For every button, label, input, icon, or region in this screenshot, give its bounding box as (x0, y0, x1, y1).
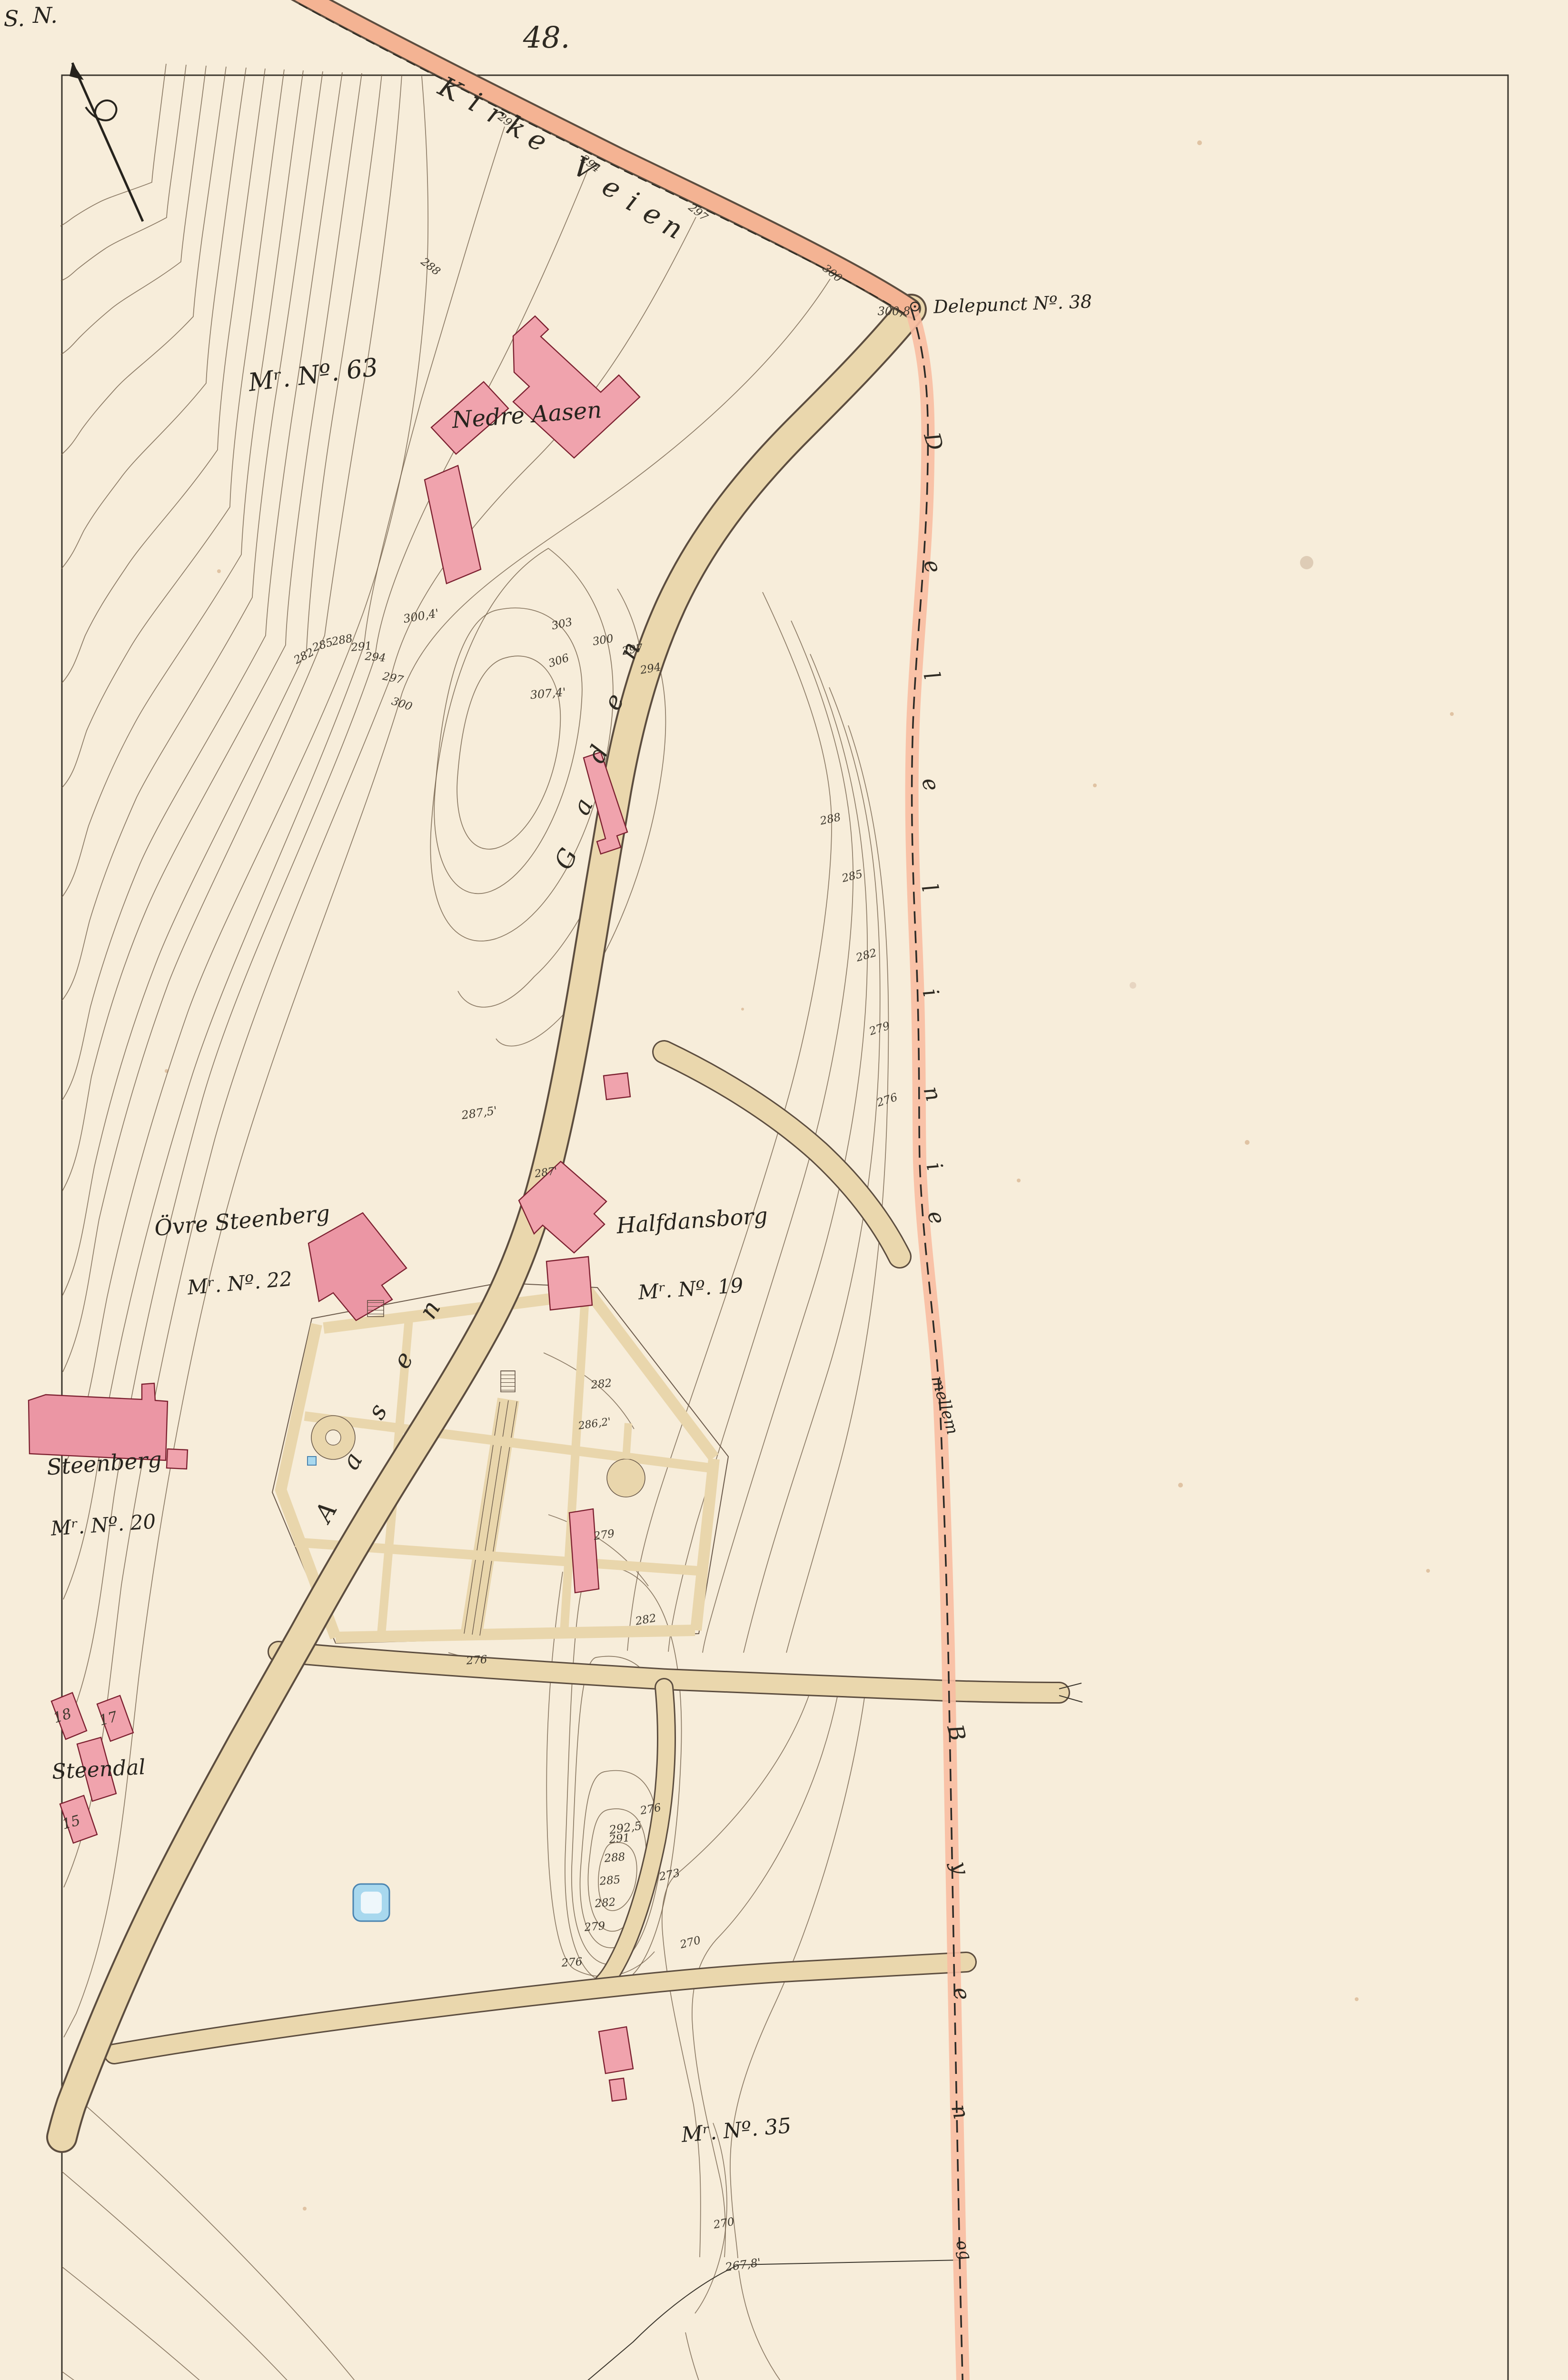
letter-kv-4: e (523, 122, 552, 158)
parcel-22: Mʳ. Nº. 22 (186, 1267, 293, 1299)
parcel-19: Mʳ. Nº. 19 (637, 1273, 744, 1304)
building-nedre-aasen-1 (513, 316, 640, 458)
map-sheet: 48. (0, 0, 1568, 2380)
place-ovre-steenberg: Övre Steenberg (153, 1200, 331, 1241)
survey-map: 48.S.N.Mʳ. Nº. 63Nedre AasenÖvre Steenbe… (0, 0, 1568, 2380)
label-cn-49: 285 (840, 868, 864, 885)
label-cn-57: 291 (608, 1832, 630, 1846)
parcel-35: Mʳ. Nº. 35 (680, 2113, 792, 2147)
roads-layer (62, 0, 1082, 2137)
letter-rb-15: A (308, 1497, 343, 1528)
letter-rb-10: G (549, 844, 584, 874)
boundary-wash (911, 308, 982, 2380)
parcel-63: Mʳ. Nº. 63 (247, 353, 380, 397)
parcel-20: Mʳ. Nº. 20 (50, 1509, 157, 1540)
property-lines (94, 2260, 960, 2380)
spot-300-4: 300,4' (402, 606, 440, 626)
label-cn-54: 279 (592, 1527, 615, 1543)
letter-kv-7: i (621, 185, 644, 218)
label-cn-56: 276 (466, 1654, 488, 1667)
compass-n: N. (32, 2, 58, 28)
letter-kv-9: n (657, 208, 688, 246)
label-cn-50: 282 (854, 947, 878, 964)
label-cn-60: 282 (594, 1896, 616, 1910)
building-small-house (604, 1073, 630, 1100)
boundary-word-mellem: mellem (927, 1374, 962, 1437)
compass-arrowhead (69, 63, 84, 80)
label-cn-64: 273 (657, 1867, 681, 1884)
building-south-1 (599, 2027, 633, 2073)
delepunct-38: Delepunct Nº. 38 (933, 291, 1092, 317)
label-cn-42: 300 (390, 695, 414, 713)
place-halfdansborg: Halfdansborg (615, 1202, 768, 1239)
spot-286-2: 286,2' (577, 1416, 612, 1432)
label-cn-45: 300 (592, 632, 615, 648)
pond (353, 1884, 389, 1921)
label-cn-65: 270 (678, 1934, 702, 1951)
boundary-delelinie (911, 302, 1002, 2380)
spot-300-8: 300,8 (878, 305, 911, 318)
garden-well (308, 1457, 316, 1465)
letter-bl-23: e (917, 774, 945, 794)
label-cn-40: 294 (364, 650, 387, 664)
building-garden-side (569, 1509, 599, 1593)
spot-267-8: 267,8' (724, 2256, 762, 2274)
label-cn-31: 288 (418, 255, 442, 278)
label-cn-52: 276 (875, 1091, 899, 1110)
spot-307-4: 307,4' (530, 685, 566, 702)
label-cn-53: 282 (590, 1377, 612, 1392)
label-cn-43: 303 (550, 616, 573, 633)
building-nedre-aasen-3 (425, 466, 481, 584)
label-cn-61: 279 (583, 1920, 605, 1934)
sheet-number: 48. (523, 20, 570, 55)
building-ovre-steenberg (308, 1213, 407, 1320)
label-cn-51: 279 (867, 1020, 892, 1038)
building-south-2 (609, 2078, 626, 2101)
garden-stairs (501, 1371, 515, 1392)
spot-287-5: 287,5' (460, 1104, 498, 1122)
kirkeveien (294, 0, 911, 308)
letter-bl-24: l (916, 881, 943, 895)
building-steenberg-annex (167, 1449, 188, 1469)
label-cn-58: 288 (603, 1851, 625, 1865)
label-cn-66: 270 (712, 2215, 735, 2231)
place-steendal: Steendal (51, 1755, 146, 1784)
label-cn-38: 288 (330, 632, 354, 648)
road3 (114, 1962, 966, 2054)
label-cn-41: 297 (381, 670, 405, 687)
compass-needle (72, 63, 143, 221)
garden-circle (607, 1459, 645, 1497)
compass (69, 63, 143, 221)
building-ovre-steenberg-annex (367, 1300, 384, 1317)
letter-rb-16: a (337, 1448, 368, 1475)
compass-s: S. (4, 6, 25, 31)
label-cn-48: 288 (818, 811, 842, 828)
building-halfdansborg-2 (546, 1257, 592, 1310)
label-cn-44: 306 (547, 652, 571, 670)
label-cn-59: 285 (598, 1874, 621, 1888)
label-cn-62: 276 (561, 1956, 583, 1970)
letter-kv-6: e (597, 169, 626, 206)
